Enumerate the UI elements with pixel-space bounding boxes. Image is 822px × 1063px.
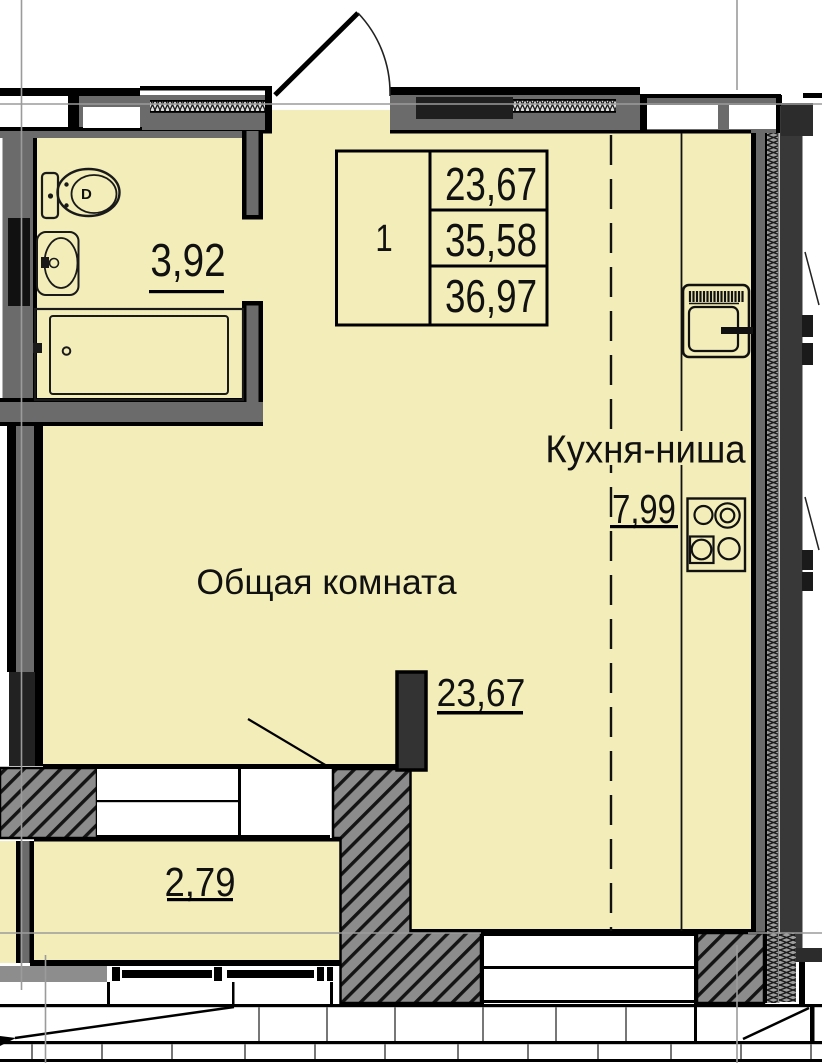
svg-text:3,92: 3,92 bbox=[150, 235, 225, 286]
svg-text:1: 1 bbox=[375, 218, 392, 260]
svg-text:D: D bbox=[81, 186, 92, 203]
svg-text:36,97: 36,97 bbox=[445, 270, 537, 322]
svg-text:35,58: 35,58 bbox=[445, 214, 537, 266]
svg-text:Общая комната: Общая комната bbox=[196, 562, 456, 602]
svg-text:23,67: 23,67 bbox=[437, 672, 526, 715]
svg-text:Кухня-ниша: Кухня-ниша bbox=[545, 428, 745, 471]
svg-text:23,67: 23,67 bbox=[445, 158, 537, 210]
